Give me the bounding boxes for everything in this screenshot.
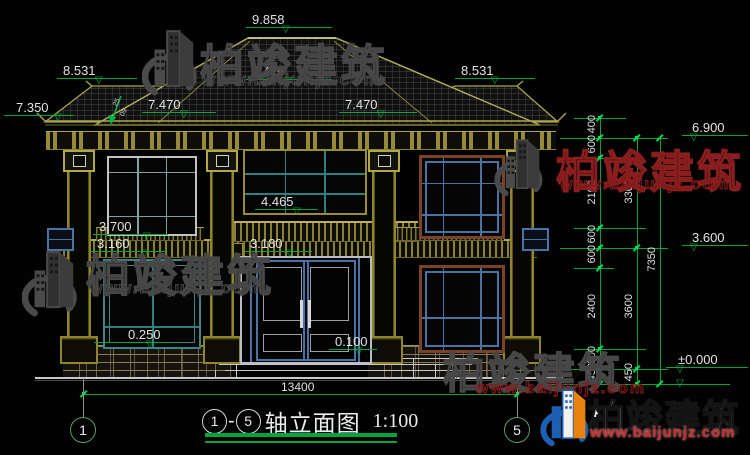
pilaster-capital	[206, 150, 238, 172]
axis-number: 1	[79, 422, 87, 438]
pilaster-capital	[63, 150, 95, 172]
elev-marker-door-base: 0.100 ▽	[329, 334, 377, 350]
axis-line-1	[83, 378, 84, 417]
elev-marker-right-zero: ±0.000 ▽	[666, 352, 748, 368]
elev-triangle: ▽	[491, 76, 499, 86]
cad-elevation-canvas: 25 09	[0, 0, 750, 455]
elev-triangle: ▽	[54, 113, 62, 123]
watermark-logo-icon-left	[22, 246, 80, 322]
elev-triangle: ▽	[146, 340, 154, 350]
pilaster-base	[203, 336, 241, 364]
elev-triangle: ▽	[377, 110, 385, 120]
title-scale: 1:100	[373, 410, 419, 433]
elev-triangle: ▽	[355, 347, 363, 357]
step-edge-l2	[215, 370, 216, 377]
elev-value: 7.350	[4, 100, 74, 115]
dim-boundary	[574, 268, 614, 269]
dim-overall-width: 13400	[281, 380, 314, 394]
dim-600: 600	[586, 225, 600, 243]
title-axis-start: 1	[202, 409, 227, 434]
step-line-3	[225, 370, 466, 371]
watermark-url-right: www.baijunjz.com	[560, 176, 730, 194]
title-axis-end: 5	[236, 409, 261, 434]
dim-400: 400	[586, 115, 600, 133]
elev-triangle: ▽	[293, 207, 301, 217]
door-handle-left	[300, 300, 303, 328]
dim-3600: 3600	[623, 294, 637, 318]
dim-450: 450	[623, 363, 637, 381]
brand-logo-icon	[540, 386, 592, 450]
dim-2400: 2400	[586, 294, 600, 318]
step-edge-r1	[413, 358, 414, 377]
elev-marker-glass-sill: 4.465 ▽	[255, 194, 318, 210]
title-dash: -	[228, 410, 235, 433]
elev-marker-peak: 9.858 ▽	[246, 12, 332, 28]
elev-triangle: ▽	[95, 76, 103, 86]
elev-value: 3.700	[93, 219, 168, 234]
door-handle-right	[308, 300, 311, 328]
dim-7350: 7350	[646, 247, 660, 271]
elev-triangle: ▽	[286, 249, 294, 259]
elev-triangle: ▽	[690, 243, 698, 253]
elev-triangle: ▽	[676, 365, 684, 375]
eave-dentil-band	[46, 131, 556, 150]
axis-bubble-5: 5	[504, 417, 530, 443]
elev-marker-sill-2f: 3.700 ▽	[93, 219, 168, 235]
axis-number: 5	[513, 422, 521, 438]
elev-marker-right-eave: 6.900 ▽	[682, 120, 748, 136]
pilaster-capital	[368, 150, 400, 172]
axis-bubble-1: 1	[70, 417, 96, 443]
watermark-url-left: www.baijunjz.com	[90, 280, 260, 298]
elev-value: 4.465	[255, 194, 318, 209]
elev-marker-base-left: 0.250 ▽	[94, 327, 172, 343]
title-underline-thin	[205, 441, 397, 443]
elev-marker-right-mid: 3.600 ▽	[682, 230, 748, 246]
watermark-url-top: www.baijunjz.com	[202, 70, 381, 90]
step-edge-r2	[435, 364, 436, 377]
pilaster-shaft	[372, 172, 396, 336]
elev-marker-eave-left: 7.350 ▽	[4, 100, 74, 116]
watermark-logo-icon-right	[494, 136, 546, 200]
elev-value: 0.250	[94, 327, 172, 342]
elev-marker-roof-right: 7.470 ▽	[339, 97, 417, 113]
watermark-logo-icon-top	[142, 26, 200, 100]
pilaster-base	[60, 336, 98, 364]
beam-end-right	[522, 228, 549, 251]
brand-logo-url: www.baijunjz.com	[590, 424, 735, 441]
title-underline-thick	[205, 433, 397, 437]
elev-triangle: ▽	[180, 110, 188, 120]
elev-marker-wing-right: 8.531 ▽	[455, 63, 535, 79]
elev-marker-wing-left: 8.531 ▽	[57, 63, 137, 79]
step-edge-l1	[236, 364, 237, 377]
dim-600: 600	[586, 245, 600, 263]
elev-value: 0.100	[329, 334, 377, 349]
window-2f-right	[419, 155, 505, 239]
dim-boundary	[574, 228, 646, 229]
